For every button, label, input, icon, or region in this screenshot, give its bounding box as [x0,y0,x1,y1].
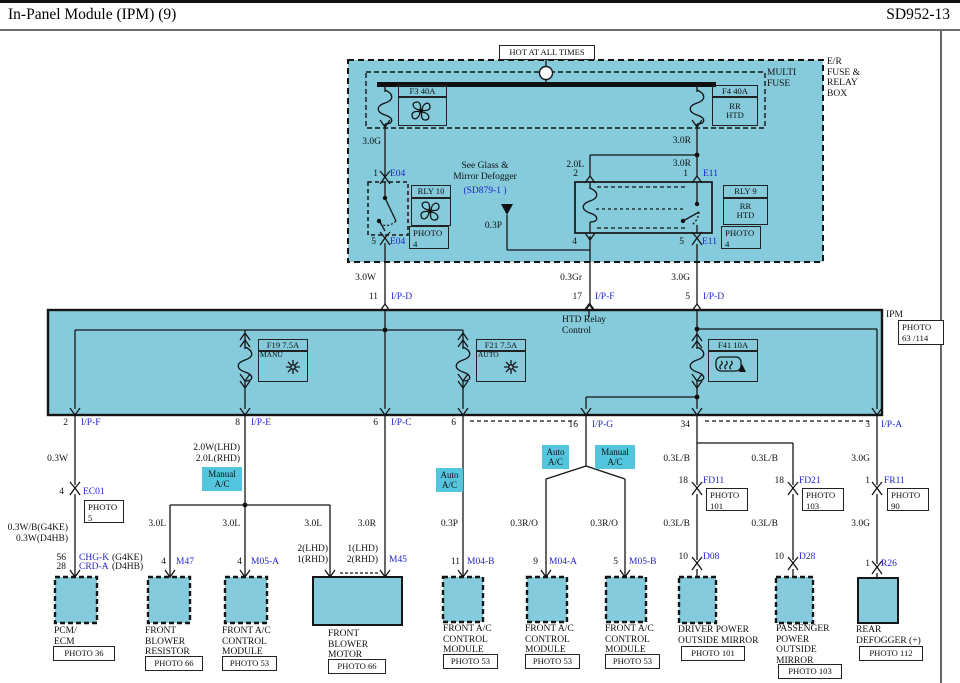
ac-module-4-photo-ref: PHOTO 53 [605,654,660,669]
d28-pin: 10 [754,552,784,563]
wire-3-0g-top: 3.0G [353,137,381,148]
wire-0-3lb-1: 0.3L/B [654,454,690,465]
driver-mirror-photo-ref: PHOTO 101 [681,646,745,661]
connector-e04-bottom[interactable]: E04 [390,237,405,248]
ipm-pin-11: 11 [356,292,378,303]
relay-10-icon-box [411,197,451,226]
fd11-photo: PHOTO 101 [706,488,748,511]
wire-3-0l-2: 3.0L [212,519,240,530]
e11-pin-2: 2 [562,169,578,180]
connector-m05-b[interactable]: M05-B [629,557,656,568]
blower-resistor-name: FRONT BLOWER RESISTOR [145,626,190,658]
fuse-f41-icon-box [708,350,758,382]
blower-motor-name: FRONT BLOWER MOTOR [328,629,368,661]
ipm-pin-6c: 6 [358,418,378,429]
ipm-conn-ipf-top[interactable]: I/P-F [595,292,615,303]
ac-module-2-name: FRONT A/C CONTROL MODULE [443,624,492,656]
driver-mirror-box [679,577,716,623]
ac-module-4-name: FRONT A/C CONTROL MODULE [605,624,654,656]
wire-0-3p-top: 0.3P [476,221,502,232]
blower-resistor-photo-ref: PHOTO 66 [145,656,203,671]
ec01-photo: PHOTO 5 [84,500,124,523]
relay-9-sub: RR HTD [723,197,768,225]
front-blower-resistor-box [148,577,190,623]
ipm-pin-16: 16 [556,420,578,431]
wire-3-0w: 3.0W [346,273,376,284]
e04-pin-5: 5 [358,237,376,248]
e04-pin-1: 1 [360,169,378,180]
ipm-pin-6: 6 [436,418,456,429]
m04b-pin: 11 [438,557,460,568]
ipm-conn-ipc[interactable]: I/P-C [391,418,412,429]
see-glass-note: See Glass & Mirror Defogger [430,161,540,182]
rear-defogger-name: REAR DEFOGGER (+) [856,625,921,646]
connector-crd-a[interactable]: CRD-A [79,562,109,573]
fr11-photo: PHOTO 90 [887,488,929,511]
pcm-ecm-box [55,577,97,623]
ipm-pin-5: 5 [666,292,690,303]
power-node [540,67,553,80]
pcm-variant-d4hb: (D4HB) [112,562,143,573]
front-ac-module-1-box [225,577,267,623]
m47-pin: 4 [150,557,166,568]
pcm-pin-28: 28 [38,562,66,573]
ac-module-1-photo-ref: PHOTO 53 [222,656,277,671]
connector-m05-a[interactable]: M05-A [251,557,279,568]
fuse-f19-sub: MANU [260,351,283,359]
ipm-conn-ipa[interactable]: I/P-A [881,420,902,431]
wire-3-0l-1: 3.0L [138,519,166,530]
rear-defogger-photo-ref: PHOTO 112 [859,646,923,661]
m05a-pin: 4 [226,557,242,568]
wire-0-3lb-4: 0.3L/B [742,519,778,530]
ipm-pin-2: 2 [48,418,68,429]
connector-d08[interactable]: D08 [703,552,719,563]
connector-fd11[interactable]: FD11 [703,476,724,487]
wire-0-3p-2: 0.3P [430,519,458,530]
wire-3-0g-1: 3.0G [840,454,870,465]
ipm-photo: PHOTO 63 /114 [898,320,944,345]
wire-3-0r-a: 3.0R [663,136,691,147]
connector-m04-b[interactable]: M04-B [467,557,494,568]
wire-pcm-variants: 0.3W/B(G4KE) 0.3W(D4HB) [0,523,68,544]
connector-r26[interactable]: R26 [881,559,897,570]
fuse-f4-sub: RR HTD [712,96,758,126]
fuse-f21-sub: AUTO [478,351,499,359]
hot-at-all-times-label: HOT AT ALL TIMES [499,45,595,60]
ipm-conn-ipd-top2[interactable]: I/P-D [703,292,724,303]
passenger-mirror-name: PASSENGER POWER OUTSIDE MIRROR [776,624,830,667]
wire-0-3ro-l: 0.3R/O [502,519,538,530]
manual-ac-tag-2: Manual A/C [595,445,635,469]
wire-0-3ro-r: 0.3R/O [582,519,618,530]
connector-e11-top[interactable]: E11 [703,169,718,180]
passenger-mirror-box [776,577,813,623]
connector-fr11[interactable]: FR11 [884,476,905,487]
motor-pin-left: 2(LHD) 1(RHD) [290,544,328,565]
wire-3-0g-mid: 3.0G [660,273,690,284]
htd-relay-control-note: HTD Relay Control [562,315,606,336]
connector-ec01[interactable]: EC01 [83,487,105,498]
pcm-ecm-name: PCM/ ECM [54,626,77,647]
connector-e11-bottom[interactable]: E11 [702,237,717,248]
motor-pin-right: 1(LHD) 2(RHD) [340,544,378,565]
wire-0-3w: 0.3W [40,454,68,465]
manual-ac-tag-1: Manual A/C [202,467,242,491]
r26-pin: 1 [850,559,870,570]
wire-0-3lb-3: 0.3L/B [654,519,690,530]
pcm-photo-ref: PHOTO 36 [53,646,115,661]
connector-d28[interactable]: D28 [799,552,815,563]
fuse-f3-icon-box [398,96,447,126]
e11-pin-1: 1 [672,169,688,180]
ipm-pin-3: 3 [850,420,870,431]
sd879-link[interactable]: (SD879-1 ) [430,186,540,197]
connector-m47[interactable]: M47 [176,557,194,568]
m04a-pin: 9 [518,557,538,568]
fd21-photo: PHOTO 103 [802,488,844,511]
ipm-pin-34: 34 [670,420,690,431]
ipm-pin-8: 8 [220,418,240,429]
e11-pin-4: 4 [561,237,577,248]
auto-ac-tag-2: Auto A/C [542,445,569,469]
d08-pin: 10 [658,552,688,563]
fr11-pin: 1 [848,476,870,487]
connector-m04-a[interactable]: M04-A [549,557,577,568]
rear-defogger-box [858,578,898,623]
driver-mirror-name: DRIVER POWER OUTSIDE MIRROR [678,625,759,646]
wire-3-0r-motor: 3.0R [346,519,376,530]
passenger-mirror-photo-ref: PHOTO 103 [778,664,842,679]
m05b-pin: 5 [598,557,618,568]
relay-9-photo: PHOTO 4 [721,226,761,249]
connector-e04-top[interactable]: E04 [390,169,405,180]
ac-module-2-photo-ref: PHOTO 53 [443,654,498,669]
front-ac-module-4-box [606,577,646,622]
wire-3-0g-2: 3.0G [840,519,870,530]
ipm-conn-ipd-top[interactable]: I/P-D [391,292,412,303]
ac-module-3-name: FRONT A/C CONTROL MODULE [525,624,574,656]
front-ac-module-2-box [443,577,483,622]
front-blower-motor-box [313,577,402,625]
connector-m45[interactable]: M45 [389,555,407,566]
blower-motor-photo-ref: PHOTO 66 [328,659,386,674]
ipm-pin-17: 17 [560,292,582,303]
relay-10-photo: PHOTO 4 [409,226,449,249]
ipm-conn-ipg[interactable]: I/P-G [592,420,613,431]
multi-fuse-label: MULTI FUSE [767,68,796,89]
ac-module-1-name: FRONT A/C CONTROL MODULE [222,626,271,658]
ipm-conn-ipf-bottom[interactable]: I/P-F [81,418,101,429]
wire-2-0w-lhd: 2.0W(LHD) 2.0L(RHD) [186,443,240,464]
connector-fd21[interactable]: FD21 [799,476,821,487]
fd21-pin: 18 [758,476,784,487]
ac-module-3-photo-ref: PHOTO 53 [525,654,580,669]
wiring-diagram-page: In-Panel Module (IPM) (9) SD952-13 [0,0,960,683]
ipm-conn-ipe[interactable]: I/P-E [251,418,271,429]
wire-0-3gr: 0.3Gr [550,273,582,284]
er-box-label: E/R FUSE & RELAY BOX [827,57,860,100]
e11-pin-5: 5 [668,237,684,248]
front-ac-module-3-box [527,577,567,622]
wire-0-3lb-2: 0.3L/B [742,454,778,465]
ec01-pin: 4 [46,487,64,498]
wire-3-0l-3: 3.0L [294,519,322,530]
auto-ac-tag-1: Auto A/C [436,468,463,492]
fd11-pin: 18 [662,476,688,487]
